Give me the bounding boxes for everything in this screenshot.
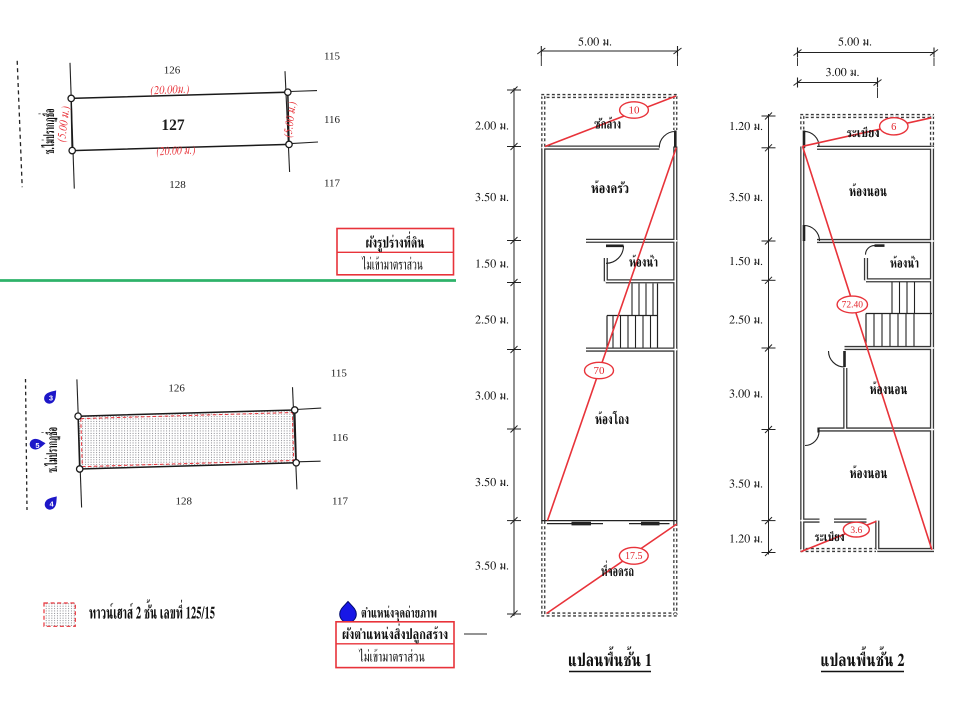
svg-text:117: 117 bbox=[332, 496, 349, 508]
svg-text:115: 115 bbox=[324, 51, 341, 63]
svg-text:70: 70 bbox=[594, 365, 606, 377]
svg-text:17.5: 17.5 bbox=[625, 551, 643, 562]
svg-text:3: 3 bbox=[49, 394, 53, 403]
svg-text:3.6: 3.6 bbox=[850, 526, 862, 536]
svg-text:128: 128 bbox=[169, 179, 186, 191]
svg-text:116: 116 bbox=[332, 432, 349, 444]
svg-text:116: 116 bbox=[324, 114, 341, 126]
svg-text:126: 126 bbox=[168, 382, 185, 394]
svg-text:128: 128 bbox=[176, 496, 193, 508]
svg-text:5: 5 bbox=[35, 441, 39, 450]
svg-text:126: 126 bbox=[164, 65, 181, 77]
svg-text:127: 127 bbox=[161, 117, 185, 134]
svg-text:6: 6 bbox=[891, 122, 896, 133]
svg-text:10: 10 bbox=[629, 105, 641, 117]
svg-text:115: 115 bbox=[331, 368, 348, 380]
svg-text:117: 117 bbox=[324, 178, 341, 190]
svg-text:72.40: 72.40 bbox=[842, 301, 864, 311]
